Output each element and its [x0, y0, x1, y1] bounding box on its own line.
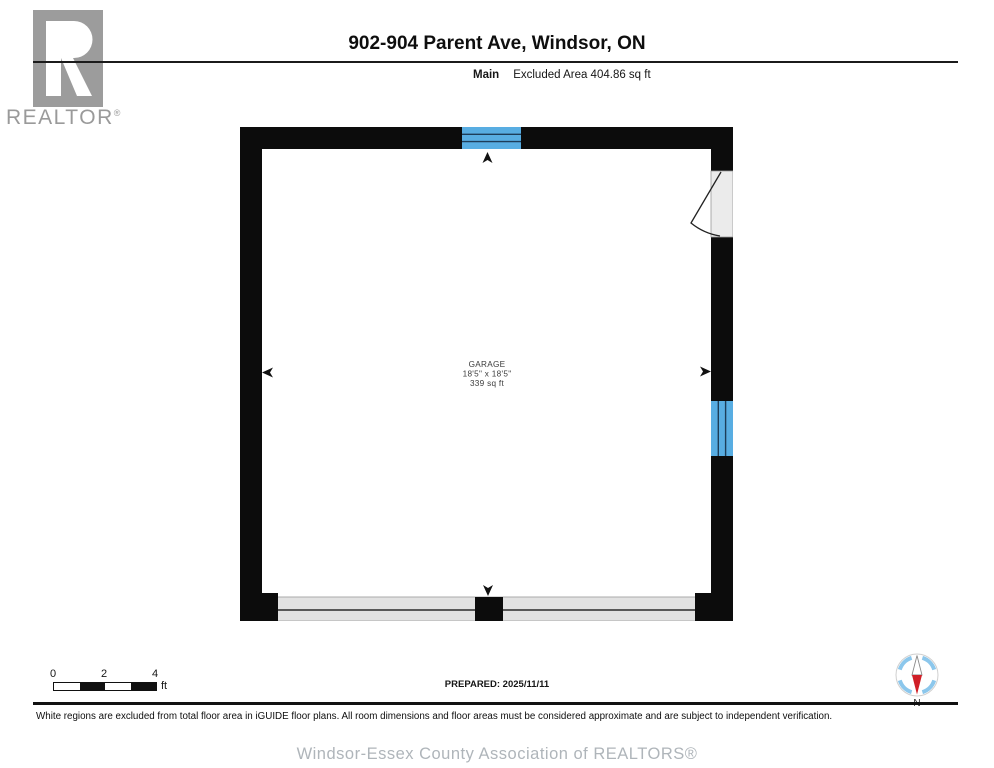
window-top-glass — [462, 127, 521, 149]
floor-name-label: Main — [473, 69, 499, 81]
room-name: GARAGE — [469, 360, 506, 369]
window-right — [711, 401, 733, 456]
window-right-glass — [711, 401, 733, 456]
garage-door-center-post — [475, 597, 503, 621]
window-top — [462, 127, 521, 149]
wall-corner-bottom-left — [240, 593, 278, 621]
page-title: 902-904 Parent Ave, Windsor, ON — [0, 33, 994, 55]
garage-floorplan: GARAGE 18'5" x 18'5" 339 sq ft — [240, 127, 733, 621]
prepared-date-label: PREPARED: 2025/11/11 — [0, 679, 994, 690]
realtor-wordmark-text: REALTOR — [6, 106, 114, 129]
wall-corner-bottom-right — [695, 593, 733, 621]
header-divider — [33, 61, 958, 63]
registered-trademark-symbol: ® — [114, 108, 121, 118]
disclaimer-divider — [33, 702, 958, 705]
realtor-wordmark: REALTOR® — [6, 106, 126, 130]
disclaimer-text: White regions are excluded from total fl… — [36, 711, 966, 722]
excluded-area-label: Excluded Area 404.86 sq ft — [513, 69, 650, 81]
room-dimensions: 18'5" x 18'5" — [463, 370, 512, 379]
room-area: 339 sq ft — [470, 379, 505, 388]
floor-summary: Main Excluded Area 404.86 sq ft — [473, 69, 651, 81]
realtor-logo-icon — [33, 10, 103, 107]
compass-icon — [894, 652, 940, 698]
floorplan-page: REALTOR® 902-904 Parent Ave, Windsor, ON… — [0, 0, 994, 768]
wall-left — [240, 127, 262, 621]
association-footer: Windsor-Essex County Association of REAL… — [0, 745, 994, 764]
door-right-threshold — [711, 171, 733, 237]
